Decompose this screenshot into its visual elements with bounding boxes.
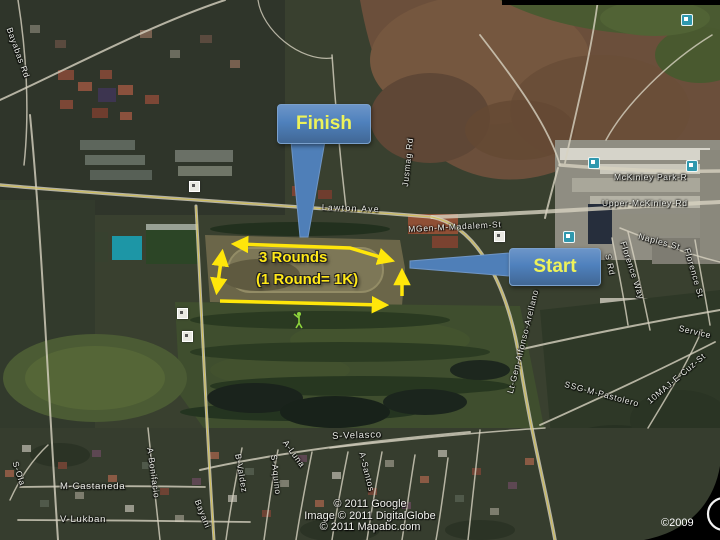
slide: Bayabas Rd Lawton Ave Jusmag Rd MGen-M-M… bbox=[0, 0, 720, 540]
slide-corner bbox=[0, 0, 720, 540]
corner-year-label: ©2009 bbox=[661, 517, 694, 529]
